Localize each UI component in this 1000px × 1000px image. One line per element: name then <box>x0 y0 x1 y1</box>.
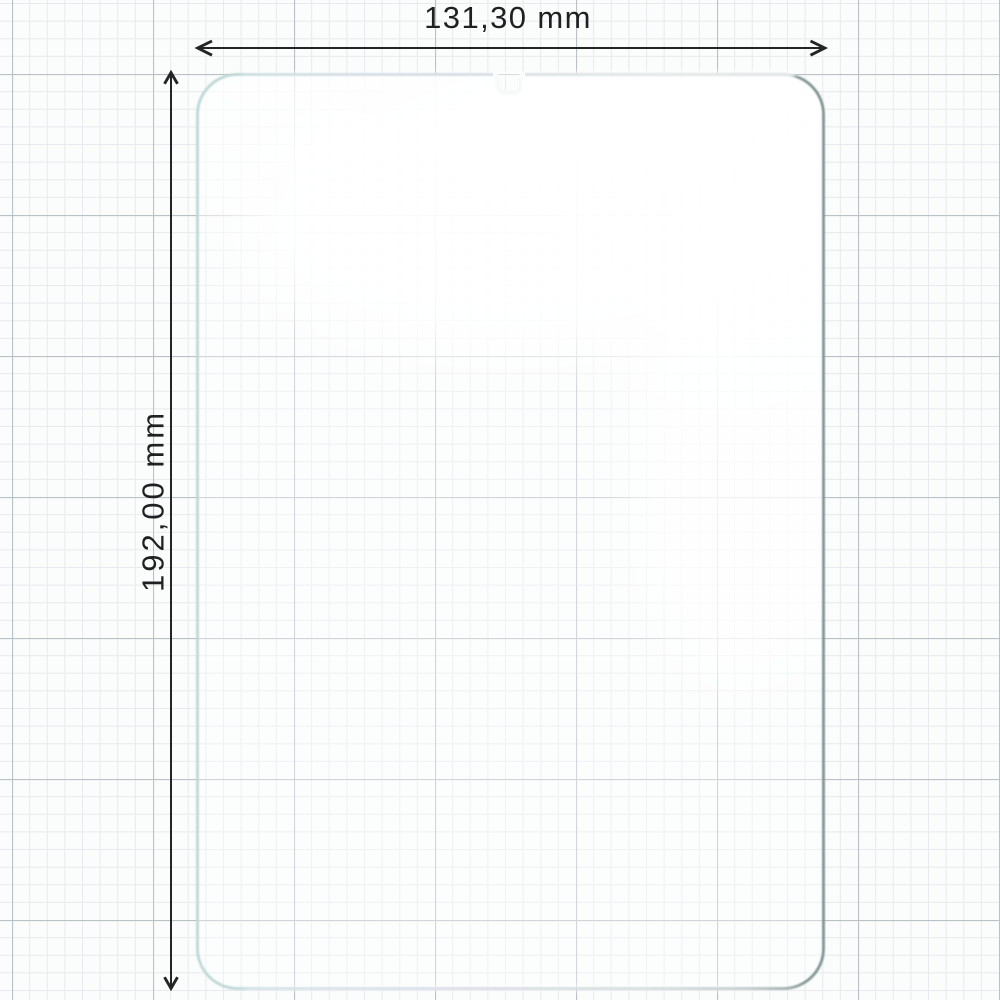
svg-text:192,00 mm: 192,00 mm <box>136 410 171 592</box>
svg-text:131,30 mm: 131,30 mm <box>424 0 592 35</box>
